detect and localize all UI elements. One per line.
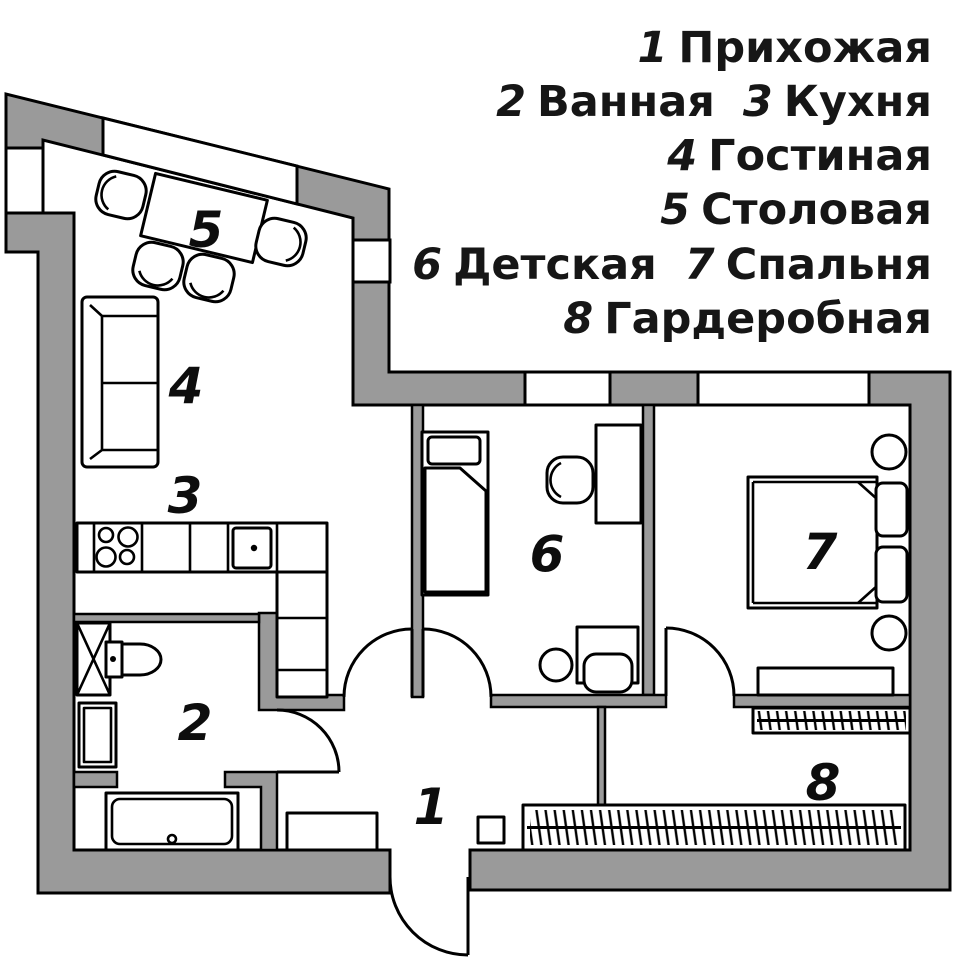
legend-num: 2	[496, 77, 526, 127]
legend-num: 3	[743, 77, 773, 127]
legend-num: 7	[685, 240, 715, 290]
legend-line: 5Столовая	[660, 185, 932, 235]
room-label-4: 4	[168, 357, 204, 415]
legend-num: 1	[637, 23, 667, 73]
bathroom-door-icon	[277, 710, 339, 772]
room6-door-icon	[423, 629, 491, 697]
legend-line: 6Детская7Спальня	[412, 240, 932, 290]
legend-name: Гостиная	[708, 131, 932, 181]
wall-bathtub-stub	[74, 772, 117, 787]
legend-name: Детская	[453, 240, 657, 290]
window-room6-icon	[525, 372, 610, 405]
dining-chair-icon	[181, 251, 238, 305]
wall-room7-bottom	[734, 695, 910, 707]
dining-chair-icon	[93, 168, 150, 222]
wall-hall-closet	[598, 707, 605, 805]
desk-chair-icon	[547, 457, 593, 503]
bed-single-icon	[422, 432, 488, 595]
legend-name: Гардеробная	[604, 294, 932, 344]
wall-room6-bottom	[491, 695, 666, 707]
desk-icon	[596, 425, 641, 523]
legend-line: 1Прихожая	[637, 23, 932, 73]
dining-chair-icon	[130, 239, 187, 293]
legend-name: Спальня	[726, 240, 932, 290]
legend-line: 4Гостиная	[666, 131, 932, 181]
legend-name: Столовая	[701, 185, 932, 235]
toilet-icon	[106, 642, 161, 677]
pillow	[876, 547, 907, 602]
room-label-7: 7	[803, 523, 838, 581]
sofa-icon	[82, 297, 158, 467]
bathtub-icon	[106, 793, 238, 850]
room-label-2: 2	[178, 694, 213, 752]
nightstand-icon	[872, 616, 906, 650]
legend: 1Прихожая 2Ванная3Кухня 4Гостиная 5Столо…	[412, 23, 932, 344]
nightstand-icon	[872, 435, 906, 469]
legend-name: Прихожая	[678, 23, 932, 73]
room-label-5: 5	[189, 201, 224, 259]
legend-name: Ванная	[537, 77, 715, 127]
entrance-door-icon	[390, 877, 468, 955]
legend-line: 2Ванная3Кухня	[496, 77, 932, 127]
dresser-icon	[758, 668, 893, 695]
legend-num: 4	[666, 131, 697, 181]
legend-line: 8Гардеробная	[563, 294, 932, 344]
room-label-1: 1	[414, 778, 449, 836]
wall-room6-room7	[643, 405, 654, 695]
pillow	[876, 483, 907, 536]
room-label-3: 3	[168, 467, 203, 525]
legend-num: 5	[660, 185, 690, 235]
side-desk-icon	[540, 627, 638, 692]
bedroom-door-icon	[666, 628, 734, 696]
legend-num: 8	[563, 294, 593, 344]
room-label-8: 8	[806, 754, 841, 812]
coat-rail-closet	[753, 708, 910, 733]
doors	[277, 628, 734, 955]
kitchen-door-icon	[344, 629, 412, 697]
stool-icon	[540, 649, 572, 681]
floor-plan-page: 1 2 3 4 5 6 7 8 1Прихожая 2Ванная3Кухня …	[0, 0, 960, 960]
tucked-chair-icon	[584, 654, 632, 692]
legend-num: 6	[412, 240, 442, 290]
floor-plan: 1 2 3 4 5 6 7 8 1Прихожая 2Ванная3Кухня …	[0, 0, 960, 960]
wall-kitchen-bathroom	[74, 614, 259, 622]
entry-stool	[478, 817, 504, 843]
kitchen-sink-icon	[233, 528, 271, 568]
window-left-icon	[6, 148, 43, 213]
bathroom-sink-icon	[79, 703, 116, 767]
window-room7-icon	[698, 372, 869, 405]
window-dining-right-icon	[353, 240, 390, 282]
coat-rail-hall	[523, 805, 905, 850]
entry-bench	[287, 813, 377, 850]
room-label-6: 6	[530, 525, 565, 583]
legend-name: Кухня	[784, 77, 932, 127]
